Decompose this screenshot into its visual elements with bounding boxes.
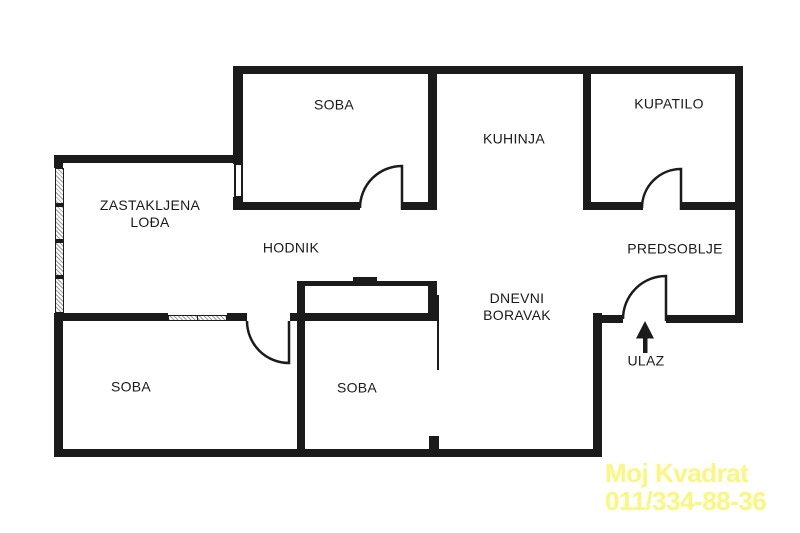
watermark-line1: Moj Kvadrat [605,459,766,487]
door-layer [0,0,800,533]
room-label-ulaz: ULAZ [628,352,665,369]
door-swing-kupatilo [642,169,681,210]
room-label-hodnik: HODNIK [263,239,319,256]
room-label-kuhinja: KUHINJA [483,130,545,147]
door-swing-ulaz [623,276,666,321]
floorplan-canvas: SOBA KUHINJA KUPATILO ZASTAKLJENA LOĐA H… [0,0,800,533]
door-swing-soba-bottom-left [247,321,289,363]
entrance-arrow-icon [636,321,654,353]
room-label-dnevni-boravak: DNEVNI BORAVAK [483,290,551,324]
room-label-soba-bottom-middle: SOBA [337,379,377,396]
room-label-predsoblje: PREDSOBLJE [627,240,723,257]
room-label-soba-bottom-left: SOBA [111,378,151,395]
watermark: Moj Kvadrat 011/334-88-36 [605,459,766,515]
watermark-line2: 011/334-88-36 [605,487,766,515]
room-label-zastakljena-lodja: ZASTAKLJENA LOĐA [100,197,200,231]
room-label-soba-top: SOBA [314,96,354,113]
door-swing-soba-top [360,166,402,210]
room-label-kupatilo: KUPATILO [634,95,704,112]
